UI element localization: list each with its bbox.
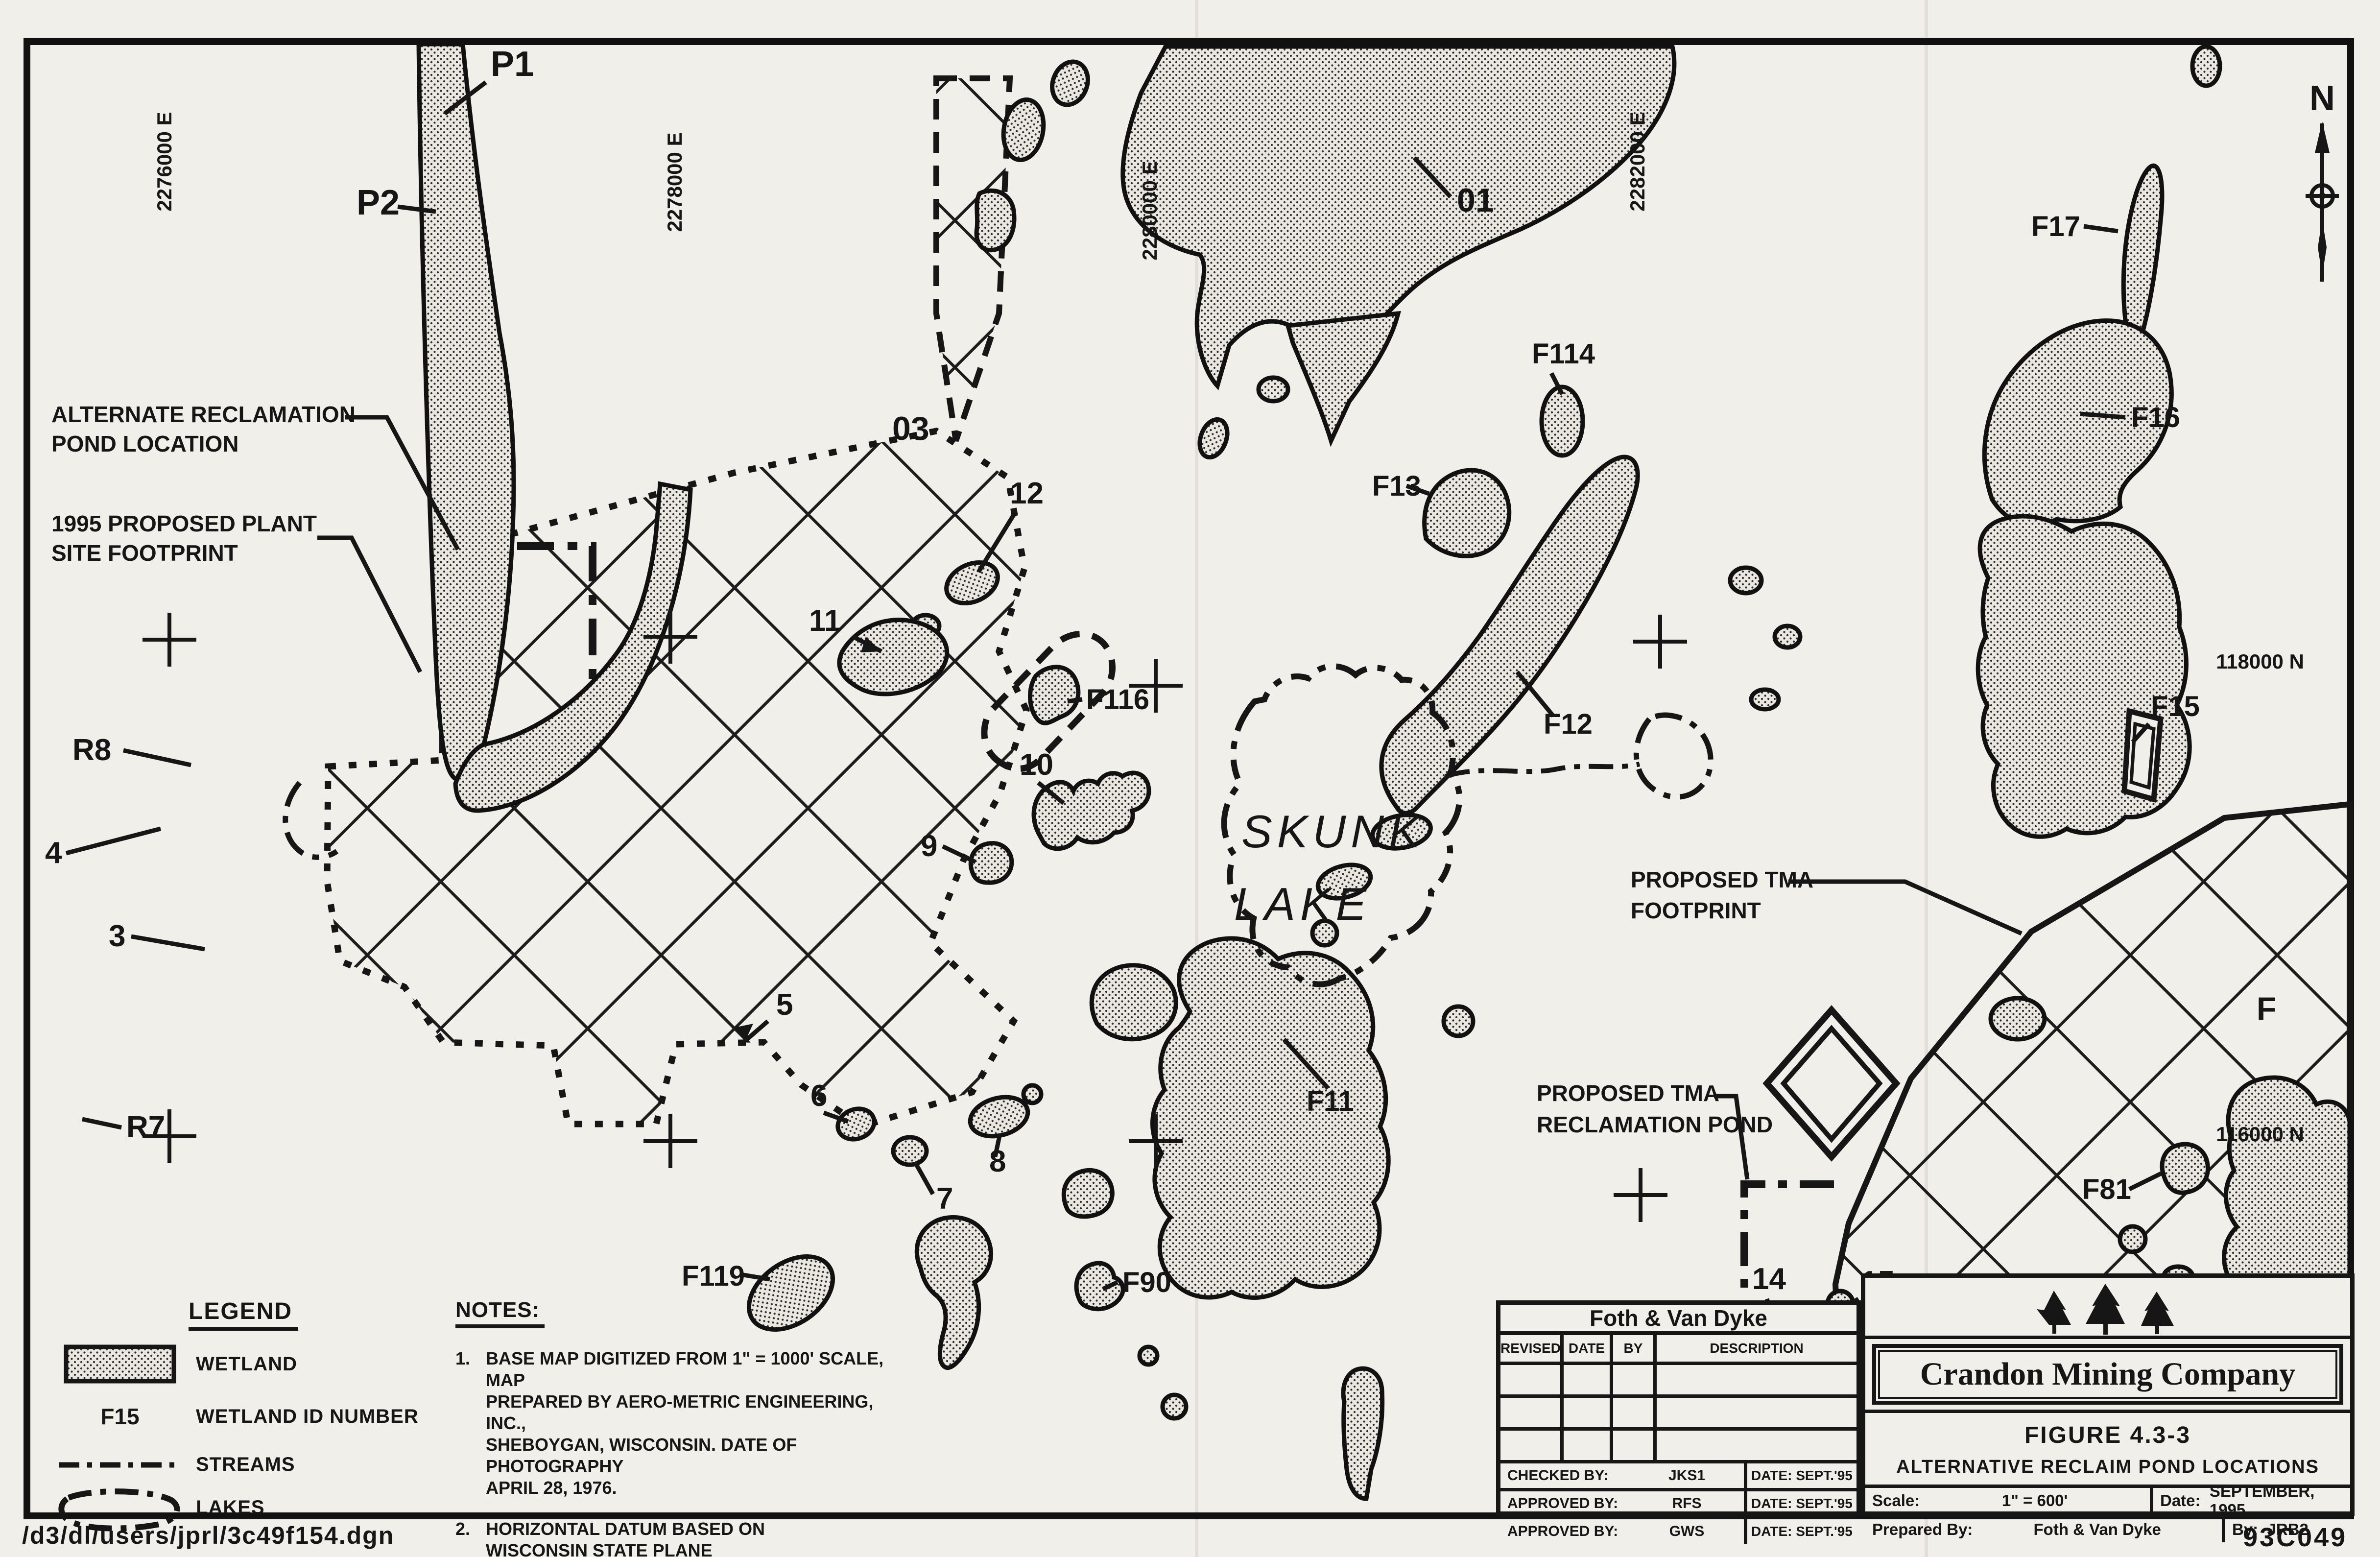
- wetland-id-labels: P1 P2 01 03 12 11 F116 10 9 F13 F114 F12…: [45, 45, 2200, 1299]
- revision-col-header: BY: [1613, 1335, 1657, 1362]
- wetland-label: 7: [936, 1182, 953, 1216]
- notes-title: NOTES:: [455, 1298, 545, 1328]
- small-lake-boundary: [1636, 715, 1711, 797]
- leader-lines: [66, 82, 2162, 1352]
- wetland-shape: [2120, 1226, 2145, 1252]
- legend-item-label: STREAMS: [196, 1454, 295, 1476]
- wetland-label: 10: [1020, 748, 1053, 782]
- wetland-shape: [1092, 965, 1176, 1039]
- annotation-line: 1995 PROPOSED PLANT: [51, 511, 317, 536]
- wetland-shape: [917, 1217, 991, 1367]
- signature-row: CHECKED BY: JKS1 DATE: SEPT.'95: [1500, 1463, 1856, 1491]
- wetland-label: F119: [682, 1260, 745, 1292]
- signature-value: JKS1: [1630, 1467, 1744, 1484]
- survey-cross-icon: [1614, 1168, 1667, 1222]
- lake-name: SKUNK LAKE: [1234, 806, 1425, 930]
- wetland-shape: [1152, 938, 1388, 1297]
- revision-title-block: Foth & Van Dyke REVISED DATE BY DESCRIPT…: [1496, 1300, 1861, 1516]
- wetland-shape: [976, 191, 1014, 250]
- revision-empty-row: [1500, 1365, 1856, 1398]
- signature-label: APPROVED BY:: [1500, 1495, 1630, 1512]
- date-value: SEPT.'95: [1796, 1468, 1853, 1484]
- wetland-label: 12: [1010, 477, 1044, 510]
- wetland-swatch-icon: [64, 1344, 176, 1384]
- date-value: SEPT.'95: [1796, 1496, 1853, 1511]
- wetland-label: R7: [126, 1110, 165, 1144]
- annotation-line: RECLAMATION POND: [1537, 1112, 1773, 1137]
- signature-value: RFS: [1630, 1495, 1744, 1512]
- wetland-shape: [2162, 1144, 2208, 1193]
- annotation-line: SITE FOOTPRINT: [51, 540, 238, 566]
- figure-number: FIGURE 4.3-3: [1865, 1422, 2350, 1449]
- scale-value: 1" = 600': [2002, 1491, 2068, 1510]
- date-label: Date:: [2160, 1491, 2201, 1510]
- wetland-label: P1: [491, 45, 534, 84]
- signature-row: APPROVED BY: GWS DATE: SEPT.'95: [1500, 1519, 1856, 1544]
- wetland-shape: [1163, 1395, 1186, 1418]
- wetland-shape: [1023, 1085, 1041, 1103]
- note-line: HORIZONTAL DATUM BASED ON: [486, 1518, 817, 1540]
- file-path: /d3/dl/users/jprl/3c49f154.dgn: [22, 1521, 394, 1550]
- wetland-label: F90: [1122, 1267, 1171, 1298]
- north-arrow-icon: N: [2306, 79, 2339, 282]
- corridor-boundary: [936, 78, 1010, 441]
- wetland-label: F11: [1307, 1085, 1354, 1117]
- signature-row: APPROVED BY: RFS DATE: SEPT.'95: [1500, 1491, 1856, 1519]
- prepared-by-value: Foth & Van Dyke: [2034, 1520, 2161, 1539]
- wetland-shape: [419, 44, 514, 780]
- grid-label: 2278000 E: [663, 132, 686, 232]
- wetland-label: 8: [989, 1145, 1006, 1178]
- wetland-shape: [1195, 416, 1232, 461]
- wetland-label: 11: [809, 604, 841, 638]
- trees-logo-icon: [2024, 1281, 2191, 1336]
- lake-name-line: SKUNK: [1241, 806, 1425, 857]
- revision-empty-row: [1500, 1398, 1856, 1431]
- wetland-shape: [1076, 1263, 1123, 1309]
- legend-item-label: WETLAND ID NUMBER: [196, 1406, 419, 1428]
- wetland-shape: [1751, 690, 1779, 709]
- wetland-shape: [1978, 516, 2190, 837]
- grid-label: 2282000 E: [1626, 112, 1649, 211]
- revision-col-header: DATE: [1564, 1335, 1613, 1362]
- wetland-shape: [1034, 773, 1149, 849]
- grid-label: 2280000 E: [1138, 161, 1161, 260]
- annotation-line: FOOTPRINT: [1631, 898, 1761, 923]
- annotation-line: ALTERNATE RECLAMATION: [51, 402, 356, 427]
- date-label: DATE:: [1751, 1524, 1792, 1539]
- wetland-label: R8: [72, 733, 111, 767]
- wetland-shape: [1425, 470, 1509, 556]
- note-line: APRIL 28, 1976.: [486, 1477, 896, 1499]
- wetland-label: 01: [1457, 182, 1494, 219]
- wetland-shape: [1730, 568, 1761, 593]
- engineer-company-name: Foth & Van Dyke: [1500, 1305, 1856, 1335]
- wetland-label: 14: [1752, 1262, 1786, 1296]
- wetland-label: F17: [2031, 211, 2080, 242]
- legend-id-symbol: F15: [100, 1403, 139, 1430]
- wetland-shape: [893, 1137, 927, 1165]
- date-label: DATE:: [1751, 1468, 1792, 1484]
- grid-label: 2276000 E: [153, 112, 176, 211]
- annotation-line: PROPOSED TMA: [1631, 867, 1813, 892]
- wetland-label: F15: [2151, 691, 2200, 722]
- note-line: BASE MAP DIGITIZED FROM 1" = 1000' SCALE…: [486, 1348, 896, 1391]
- signature-value: GWS: [1630, 1523, 1744, 1540]
- wetland-label: 3: [109, 919, 125, 953]
- wetland-shape: [1991, 998, 2045, 1039]
- wetland-shape: [1444, 1006, 1473, 1036]
- north-label: N: [2309, 79, 2335, 118]
- note-line: WISCONSIN STATE PLANE: [486, 1540, 817, 1557]
- legend: LEGEND WETLAND F15 WETLAND ID NUMBER STR…: [44, 1298, 455, 1331]
- wetland-shape: [971, 843, 1012, 883]
- wetland-label: F81: [2082, 1174, 2131, 1205]
- scale-label: Scale:: [1872, 1491, 1920, 1510]
- notes: NOTES: 1. BASE MAP DIGITIZED FROM 1" = 1…: [455, 1298, 896, 1557]
- signature-label: APPROVED BY:: [1500, 1523, 1630, 1540]
- date-label: DATE:: [1751, 1496, 1792, 1511]
- wetland-shape: [1288, 313, 1398, 441]
- prepared-by-label: Prepared By:: [1872, 1520, 1973, 1539]
- annotation-line: POND LOCATION: [51, 431, 238, 456]
- wetland-label: F12: [1544, 708, 1593, 740]
- wetland-label: F16: [2131, 402, 2180, 433]
- legend-title: LEGEND: [189, 1298, 298, 1331]
- wetland-shape: [2224, 1078, 2350, 1300]
- wetland-label: F13: [1372, 470, 1421, 502]
- signature-label: CHECKED BY:: [1500, 1467, 1630, 1484]
- wetland-shape: [1064, 1170, 1112, 1217]
- wetland-shape: [1259, 378, 1288, 401]
- note-number: 1.: [455, 1348, 486, 1499]
- note-line: PREPARED BY AERO-METRIC ENGINEERING, INC…: [486, 1391, 896, 1434]
- wetland-label: 03: [892, 410, 929, 447]
- survey-cross-icon: [143, 613, 196, 667]
- revision-col-header: REVISED: [1500, 1335, 1564, 1362]
- wetland-shape: [1542, 387, 1583, 455]
- figure-title-block: Crandon Mining Company FIGURE 4.3-3 ALTE…: [1861, 1273, 2355, 1516]
- grid-label: 118000 N: [2216, 650, 2304, 673]
- figure-page: P1 P2 01 03 12 11 F116 10 9 F13 F114 F12…: [0, 0, 2380, 1557]
- date-value: SEPTEMBER, 1995: [2210, 1482, 2350, 1519]
- wetland-shape: [2192, 47, 2220, 86]
- legend-item-label: WETLAND: [196, 1353, 297, 1375]
- drawing-number: 93C049: [2243, 1522, 2347, 1553]
- survey-cross-icon: [1633, 615, 1687, 669]
- date-value: SEPT.'95: [1796, 1524, 1853, 1539]
- lake-name-line: LAKE: [1234, 878, 1371, 930]
- revision-col-header: DESCRIPTION: [1657, 1335, 1856, 1362]
- wetland-shape: [1123, 47, 1674, 386]
- wetland-shape: [1047, 57, 1094, 110]
- note-line: SHEBOYGAN, WISCONSIN. DATE OF PHOTOGRAPH…: [486, 1434, 896, 1477]
- wetland-shape: [1140, 1347, 1157, 1365]
- wetland-shape: [2123, 166, 2162, 346]
- stream-line: [1446, 764, 1640, 776]
- wetland-shape: [1775, 626, 1800, 647]
- wetland-label: 6: [810, 1079, 827, 1113]
- wetland-label: 9: [921, 829, 937, 863]
- annotation-line: PROPOSED TMA: [1537, 1080, 1719, 1106]
- legend-item-label: LAKES: [196, 1497, 265, 1519]
- revision-empty-row: [1500, 1431, 1856, 1463]
- figure-subtitle: ALTERNATIVE RECLAIM POND LOCATIONS: [1865, 1457, 2350, 1478]
- streams-symbol-icon: [56, 1458, 184, 1472]
- wetland-label: F114: [1532, 338, 1595, 370]
- wetland-label: 5: [776, 988, 793, 1022]
- wetland-shape: [1030, 667, 1078, 723]
- wetland-shape: [1343, 1368, 1382, 1499]
- wetland-label: 4: [45, 836, 62, 870]
- company-name: Crandon Mining Company: [1878, 1350, 2337, 1399]
- grid-label: 116000 N: [2216, 1123, 2304, 1146]
- wetland-label: P2: [357, 183, 400, 222]
- note-number: 2.: [455, 1518, 486, 1557]
- grid-label: F: [2257, 990, 2276, 1027]
- wetland-label: F116: [1086, 684, 1149, 716]
